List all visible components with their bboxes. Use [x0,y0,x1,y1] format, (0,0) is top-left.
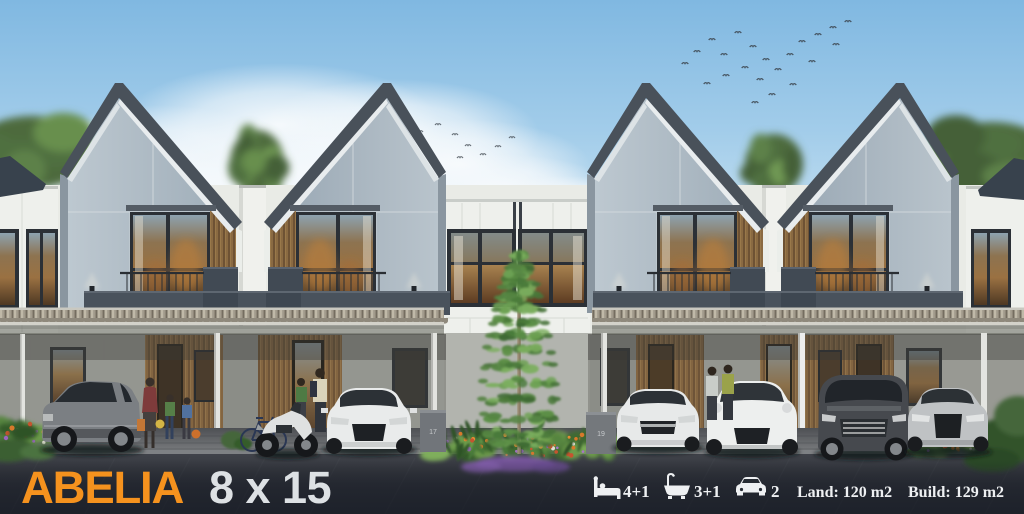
svg-text:4+1: 4+1 [623,482,650,501]
svg-text:8 x 15: 8 x 15 [209,462,331,513]
svg-text:19: 19 [597,431,605,438]
svg-text:Land: 120 m2: Land: 120 m2 [797,484,892,501]
svg-text:3+1: 3+1 [694,482,721,501]
svg-text:ABELIA: ABELIA [21,462,184,513]
svg-text:2: 2 [771,482,780,501]
svg-text:17: 17 [429,429,437,436]
svg-text:Build: 129 m2: Build: 129 m2 [908,484,1004,501]
